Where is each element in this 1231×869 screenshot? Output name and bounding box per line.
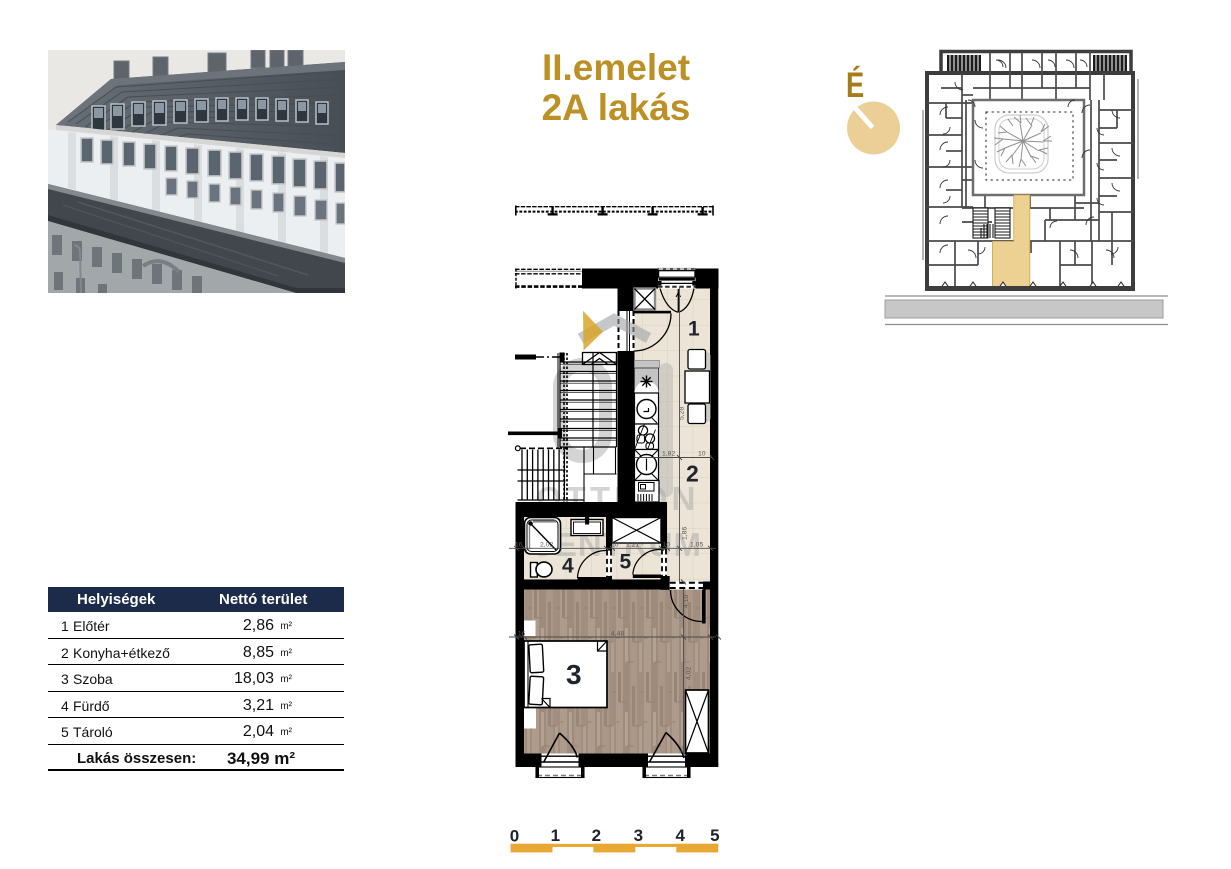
svg-text:3: 3 bbox=[566, 659, 582, 690]
svg-text:.16: .16 bbox=[516, 631, 526, 638]
svg-text:5,28: 5,28 bbox=[679, 407, 686, 420]
svg-text:2: 2 bbox=[592, 826, 601, 845]
svg-text:3: 3 bbox=[634, 826, 643, 845]
svg-text:1: 1 bbox=[688, 318, 700, 341]
svg-text:5: 5 bbox=[710, 826, 719, 845]
svg-text:10: 10 bbox=[663, 542, 671, 549]
svg-text:4,48: 4,48 bbox=[611, 631, 624, 638]
svg-text:1,82: 1,82 bbox=[662, 451, 675, 458]
svg-text:10: 10 bbox=[698, 451, 706, 458]
svg-text:2: 2 bbox=[686, 461, 699, 487]
svg-text:1,05: 1,05 bbox=[690, 542, 703, 549]
svg-text:4: 4 bbox=[562, 555, 574, 578]
svg-text:16: 16 bbox=[515, 542, 523, 549]
svg-text:10: 10 bbox=[611, 542, 619, 549]
svg-text:2,02: 2,02 bbox=[540, 542, 553, 549]
svg-text:5: 5 bbox=[620, 551, 632, 574]
svg-text:4,02: 4,02 bbox=[686, 667, 693, 680]
svg-text:1,21: 1,21 bbox=[626, 542, 639, 549]
svg-text:4,10: 4,10 bbox=[683, 595, 690, 608]
svg-text:0: 0 bbox=[510, 827, 519, 846]
svg-text:4: 4 bbox=[675, 826, 685, 845]
svg-text:1,86: 1,86 bbox=[682, 527, 689, 540]
svg-text:1: 1 bbox=[551, 826, 560, 845]
